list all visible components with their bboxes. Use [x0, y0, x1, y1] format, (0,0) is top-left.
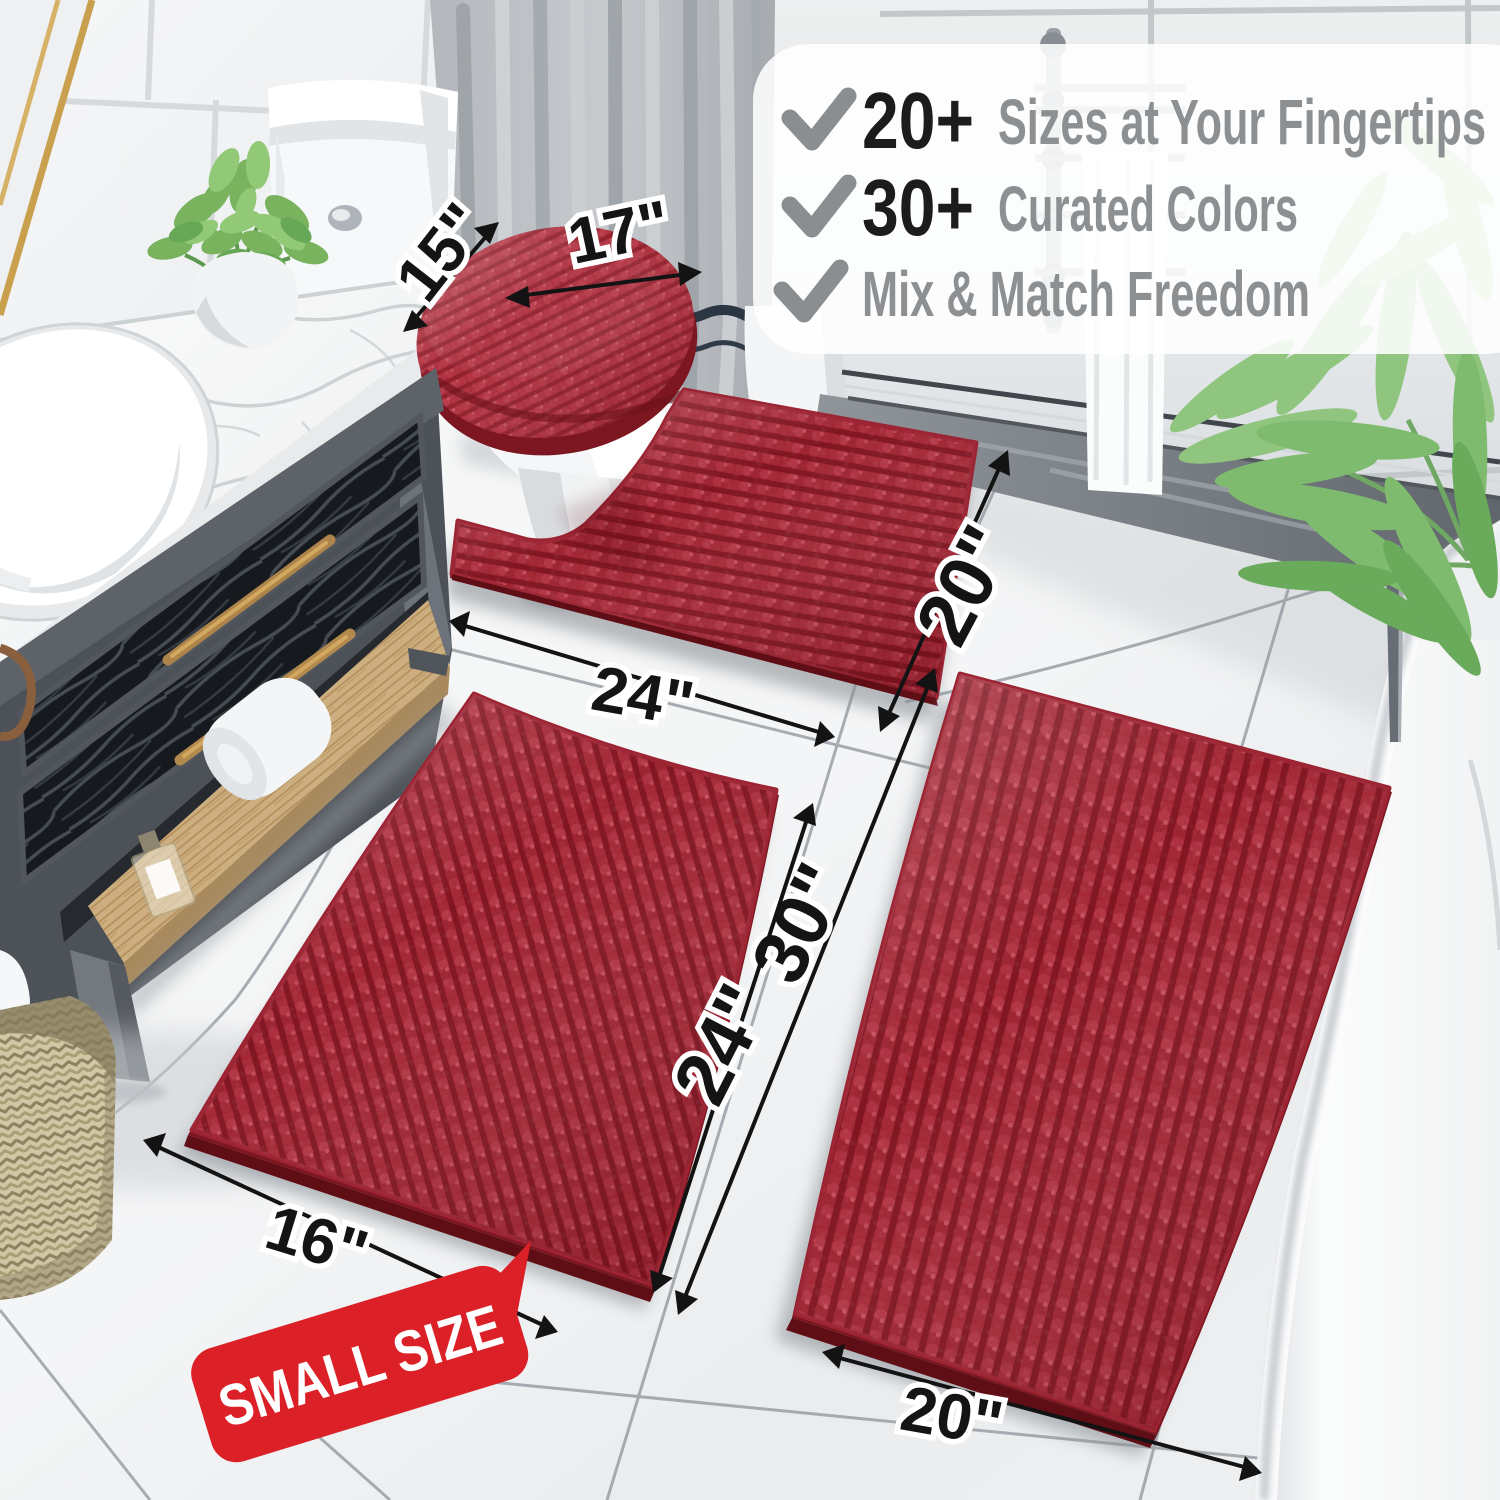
- svg-text:Sizes at Your Fingertips: Sizes at Your Fingertips: [998, 86, 1486, 158]
- svg-text:Mix & Match Freedom: Mix & Match Freedom: [862, 258, 1310, 330]
- svg-text:Curated Colors: Curated Colors: [998, 173, 1298, 245]
- svg-text:20+: 20+: [862, 76, 974, 165]
- svg-text:30+: 30+: [862, 163, 974, 252]
